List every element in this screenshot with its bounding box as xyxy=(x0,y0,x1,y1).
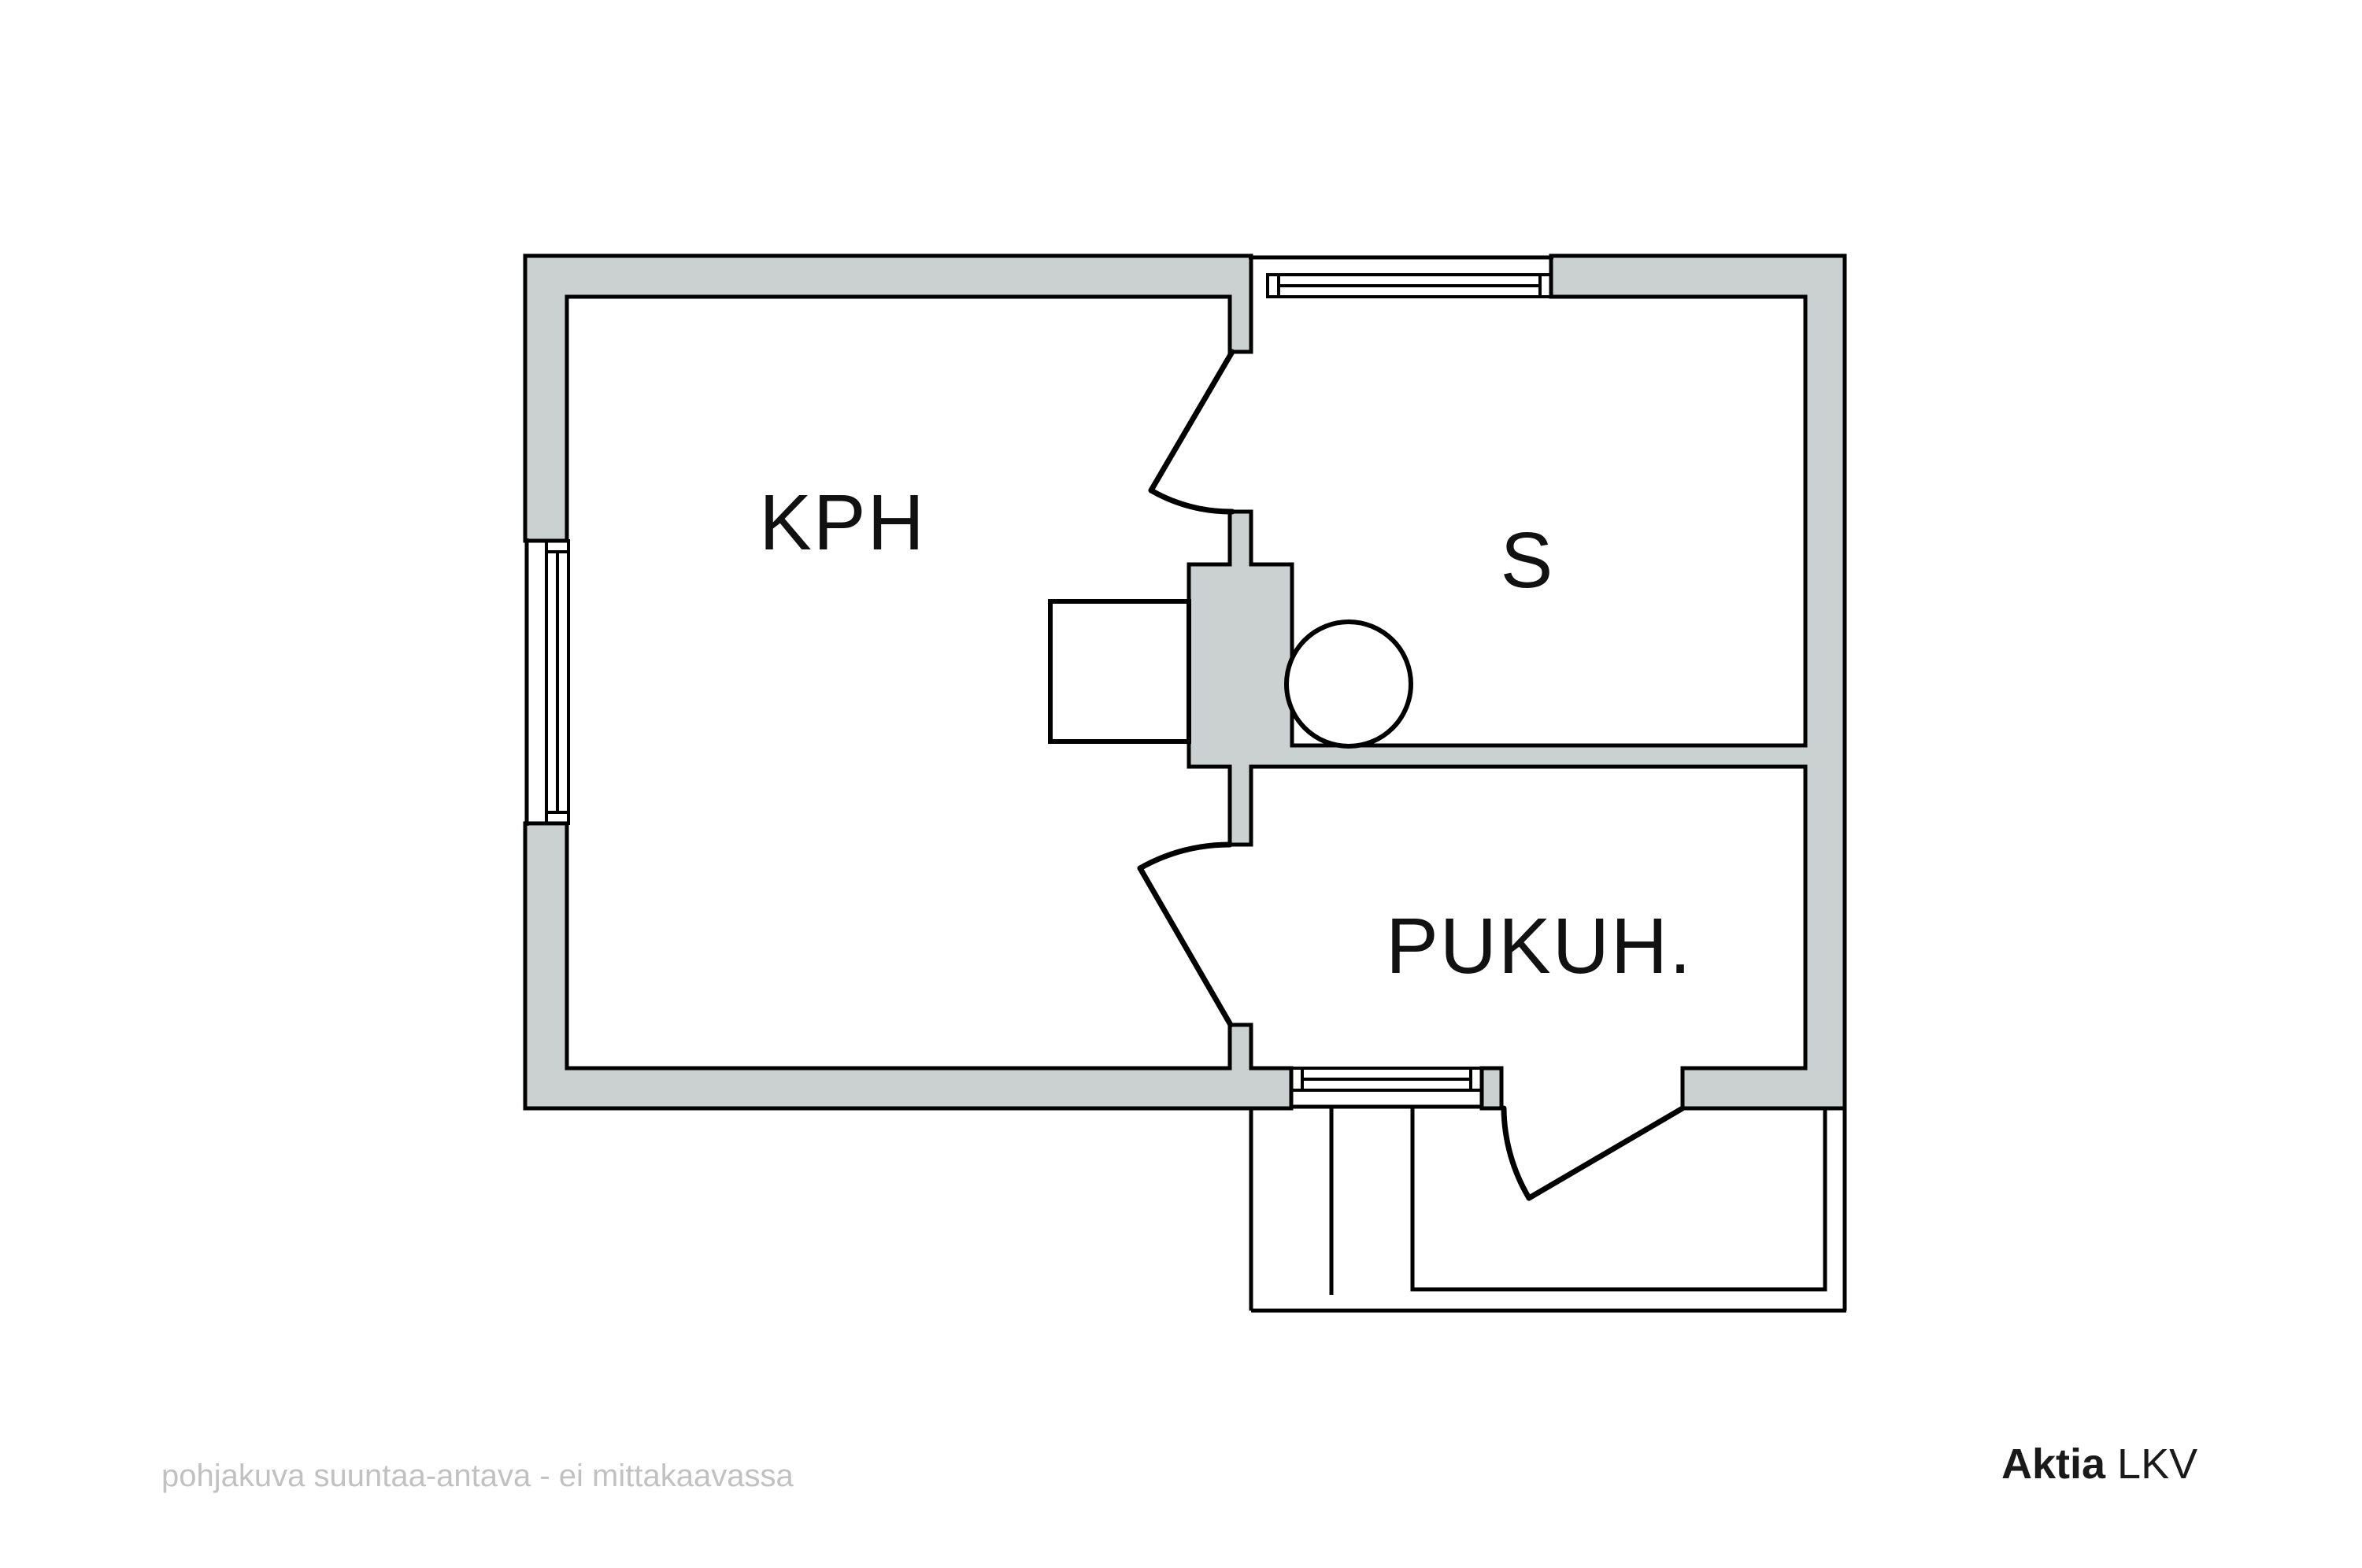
door-leaf xyxy=(1140,868,1231,1025)
door-kph-to-pukuh xyxy=(1140,845,1231,1025)
door-swing-arc xyxy=(1504,1108,1529,1198)
floor-plan-drawing: KPH S PUKUH. pohjakuva suuntaa-antava - … xyxy=(0,0,2362,1568)
door-swing-arc xyxy=(1151,490,1232,512)
porch-outline xyxy=(1251,1108,1846,1311)
bench-rect xyxy=(1050,601,1189,741)
wall-bottom-pier xyxy=(1482,1068,1501,1108)
floor-plan-page: KPH S PUKUH. pohjakuva suuntaa-antava - … xyxy=(0,0,2362,1568)
wall-bottom-left xyxy=(525,823,1291,1108)
window-left-kph xyxy=(527,538,568,826)
logo-brand: Aktia xyxy=(2001,1440,2106,1488)
door-kph-to-sauna xyxy=(1151,352,1232,512)
room-label-pukuh: PUKUH. xyxy=(1386,902,1693,990)
porch-inner-step xyxy=(1412,1108,1825,1289)
window-bottom-pukuh xyxy=(1291,1068,1482,1107)
room-label-kph: KPH xyxy=(759,479,926,567)
disclaimer-text: pohjakuva suuntaa-antava - ei mittakaava… xyxy=(161,1459,794,1493)
room-label-sauna: S xyxy=(1501,516,1555,605)
logo-suffix: LKV xyxy=(2105,1440,2197,1488)
sauna-stove-circle xyxy=(1287,622,1411,746)
aktia-lkv-logo: Aktia LKV xyxy=(2001,1440,2197,1488)
door-swing-arc xyxy=(1140,845,1230,868)
door-entry-pukuh xyxy=(1504,1108,1683,1198)
door-leaf xyxy=(1151,352,1232,490)
door-leaf xyxy=(1529,1108,1683,1198)
window-top-sauna xyxy=(1249,257,1553,297)
